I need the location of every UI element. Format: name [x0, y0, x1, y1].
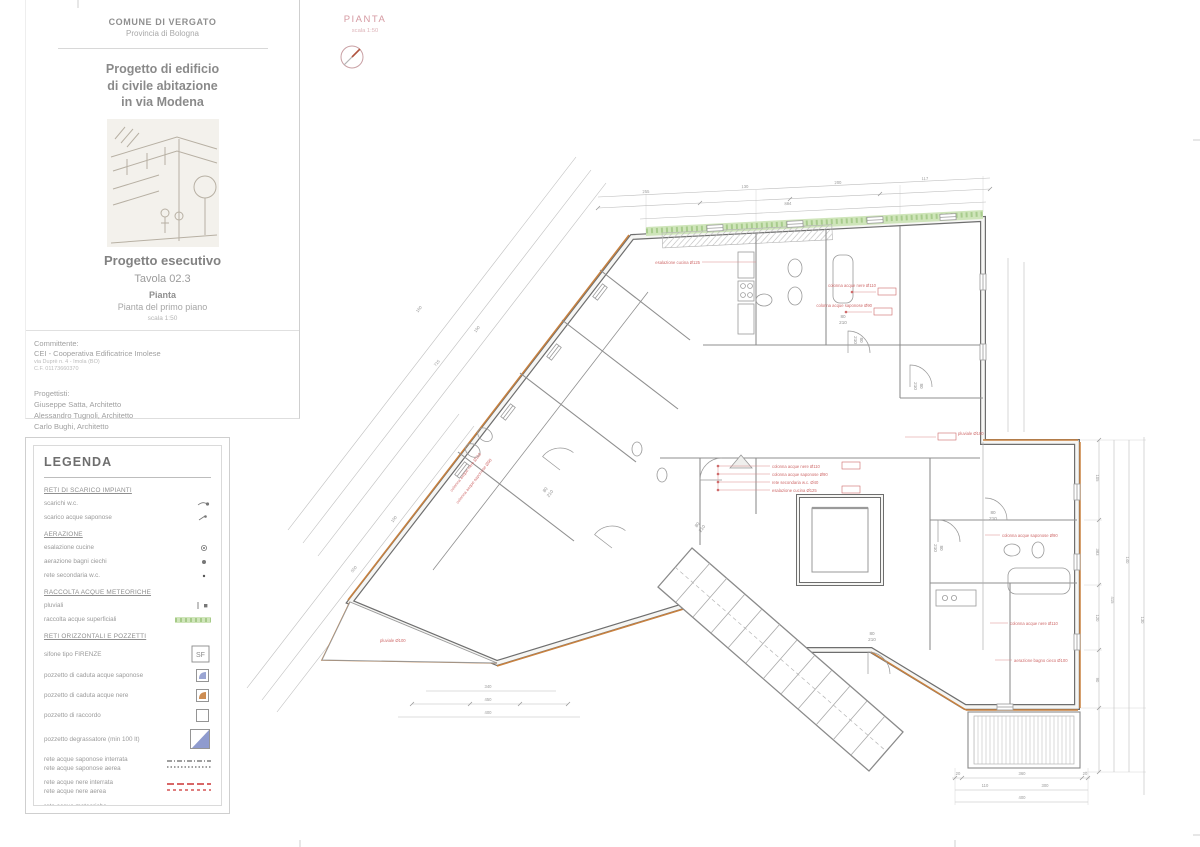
legend-item: pozzetto degrassatore (min 100 lt) — [44, 728, 211, 750]
kitchen-vent-icon — [195, 544, 211, 552]
svg-text:80: 80 — [919, 383, 924, 389]
soapy-water-drain-icon — [195, 514, 211, 522]
legend-item: pluviali — [44, 601, 211, 610]
svg-text:80: 80 — [859, 337, 864, 343]
legend-item: esalazione cucine — [44, 543, 211, 552]
svg-text:360: 360 — [1019, 771, 1027, 776]
legend-item: rete secondaria w.c. — [44, 571, 211, 580]
legend-section-heading: AERAZIONE — [44, 531, 211, 538]
svg-text:colonna acque saponose Ø90: colonna acque saponose Ø90 — [816, 303, 872, 308]
divider — [26, 330, 299, 331]
svg-text:210: 210 — [853, 336, 858, 344]
legend-item: rete acque meteoriche — [44, 802, 211, 807]
svg-text:210: 210 — [868, 637, 876, 642]
north-compass-icon — [341, 46, 363, 68]
client-label: Committente: — [34, 339, 299, 349]
drawing-type: Pianta — [26, 290, 299, 300]
svg-text:20: 20 — [1083, 771, 1088, 776]
svg-text:210: 210 — [839, 320, 847, 325]
svg-text:80: 80 — [840, 314, 846, 319]
svg-text:130: 130 — [1140, 617, 1145, 625]
svg-text:255: 255 — [642, 189, 650, 194]
legend-panel: LEGENDA RETI DI SCARICO IMPIANTI scarich… — [25, 437, 230, 814]
svg-text:210: 210 — [989, 516, 997, 521]
svg-text:340: 340 — [485, 684, 493, 689]
designer-name: Giuseppe Satta, Architetto — [34, 400, 299, 411]
svg-text:300: 300 — [1042, 783, 1050, 788]
svg-text:110: 110 — [982, 783, 989, 788]
svg-text:colonna acque saponose Ø90: colonna acque saponose Ø90 — [1002, 533, 1058, 538]
svg-text:colonna acque nere Ø110: colonna acque nere Ø110 — [828, 283, 877, 288]
svg-text:200: 200 — [834, 180, 842, 185]
legend-item: aerazione bagni ciechi — [44, 557, 211, 566]
svg-text:90: 90 — [1095, 678, 1100, 683]
designers-block: Progettisti: Giuseppe Satta, Architetto … — [34, 389, 299, 433]
wc-drain-icon — [195, 500, 211, 508]
svg-text:210: 210 — [933, 544, 938, 552]
surface-water-swatch — [175, 616, 211, 624]
legend-item: scarichi w.c. — [44, 499, 211, 508]
svg-text:117: 117 — [921, 176, 929, 181]
drawing-sheet: 255 130 200 117 884 105 383 120 90 415 1… — [0, 0, 1200, 847]
svg-text:colonna acque saponose Ø90: colonna acque saponose Ø90 — [772, 472, 828, 477]
title-block: COMUNE DI VERGATO Provincia di Bologna P… — [25, 0, 300, 419]
legend-section-heading: RETI ORIZZONTALI E POZZETTI — [44, 633, 211, 640]
project-title: Progetto di edificio di civile abitazion… — [26, 61, 299, 111]
svg-text:rete secondaria w.c. Ø40: rete secondaria w.c. Ø40 — [772, 480, 819, 485]
soapy-drop-manhole-icon — [195, 668, 211, 683]
sheet-number: Tavola 02.3 — [26, 273, 299, 285]
svg-text:715: 715 — [433, 358, 442, 367]
blind-bath-vent-icon — [195, 558, 211, 566]
svg-text:aerazione bagno cieco Ø100: aerazione bagno cieco Ø100 — [1014, 658, 1068, 663]
legend-section-heading: RACCOLTA ACQUE METEORICHE — [44, 589, 211, 596]
drawing-subtitle: Pianta del primo piano — [26, 302, 299, 312]
terrace-hatch — [968, 712, 1080, 768]
svg-text:pluviale Ø100: pluviale Ø100 — [958, 431, 984, 436]
plan-title: PIANTA — [330, 14, 400, 25]
svg-text:80: 80 — [990, 510, 996, 515]
svg-text:130: 130 — [741, 184, 749, 189]
svg-text:400: 400 — [485, 710, 493, 715]
legend-item: raccolta acque superficiali — [44, 615, 211, 624]
legend-item: pozzetto di caduta acque saponose — [44, 668, 211, 683]
legend-item: scarico acque saponose — [44, 513, 211, 522]
legend-item: pozzetto di raccordo — [44, 708, 211, 723]
municipality: COMUNE DI VERGATO — [26, 17, 299, 27]
legend-section-heading: RETI DI SCARICO IMPIANTI — [44, 487, 211, 494]
client-address: via Duprè n. 4 - Imola (BO) — [34, 359, 299, 366]
black-water-net-line-swatch — [167, 780, 211, 794]
svg-text:884: 884 — [784, 201, 792, 206]
soapy-net-line-swatch — [167, 757, 211, 771]
province: Provincia di Bologna — [26, 29, 299, 38]
junction-manhole-icon — [195, 708, 211, 723]
downpipe-icon — [193, 601, 211, 610]
legend-item: rete acque saponose interrata rete acque… — [44, 755, 211, 773]
svg-text:550: 550 — [350, 564, 359, 573]
plan-scale: scala 1:50 — [330, 28, 400, 34]
svg-text:pluviale Ø100: pluviale Ø100 — [380, 638, 406, 643]
svg-text:colonna acque nere Ø110: colonna acque nere Ø110 — [772, 464, 821, 469]
designers-label: Progettisti: — [34, 389, 299, 400]
client-name: CEI - Cooperativa Edificatrice Imolese — [34, 349, 299, 359]
svg-text:105: 105 — [1095, 475, 1100, 483]
svg-text:450: 450 — [485, 697, 493, 702]
secondary-wc-net-icon — [195, 572, 211, 580]
svg-text:120: 120 — [1095, 615, 1100, 623]
elevator-shaft — [798, 496, 882, 584]
svg-text:210: 210 — [913, 382, 918, 390]
rainwater-net-line-swatch — [167, 802, 211, 806]
designer-name: Carlo Bughi, Architetto — [34, 422, 299, 433]
svg-text:esalazione cucina Ø125: esalazione cucina Ø125 — [772, 488, 817, 493]
project-phase: Progetto esecutivo — [26, 253, 299, 268]
svg-text:383: 383 — [1095, 549, 1100, 557]
client-tax-code: C.F. 01173660370 — [34, 366, 299, 373]
firenze-siphon-icon: SF — [191, 645, 211, 663]
drawing-scale: scala 1:50 — [26, 315, 299, 322]
svg-text:190: 190 — [473, 324, 482, 333]
svg-text:415: 415 — [1110, 597, 1115, 605]
divider — [44, 477, 211, 478]
legend-item: sifone tipo FIRENZE SF — [44, 645, 211, 663]
svg-text:80: 80 — [869, 631, 875, 636]
degreaser-manhole-icon — [189, 728, 211, 750]
designer-name: Alessandro Tugnoli, Architetto — [34, 411, 299, 422]
svg-text:20: 20 — [956, 771, 961, 776]
svg-text:140: 140 — [1125, 557, 1130, 565]
svg-text:SF: SF — [196, 652, 205, 659]
client-block: Committente: CEI - Cooperativa Edificatr… — [34, 339, 299, 374]
svg-text:100: 100 — [390, 514, 399, 523]
plan-header: PIANTA scala 1:50 — [330, 14, 400, 34]
legend-item: rete acque nere interrata rete acque ner… — [44, 778, 211, 796]
svg-text:400: 400 — [1019, 795, 1027, 800]
black-water-drop-manhole-icon — [195, 688, 211, 703]
svg-text:colonna acque nere Ø110: colonna acque nere Ø110 — [1010, 621, 1059, 626]
svg-text:esalazione cucina Ø125: esalazione cucina Ø125 — [655, 260, 700, 265]
svg-text:80: 80 — [939, 545, 944, 551]
svg-text:160: 160 — [415, 304, 424, 313]
legend-title: LEGENDA — [44, 455, 211, 469]
perspective-sketch — [107, 119, 219, 247]
divider — [58, 48, 268, 49]
legend-item: pozzetto di caduta acque nere — [44, 688, 211, 703]
